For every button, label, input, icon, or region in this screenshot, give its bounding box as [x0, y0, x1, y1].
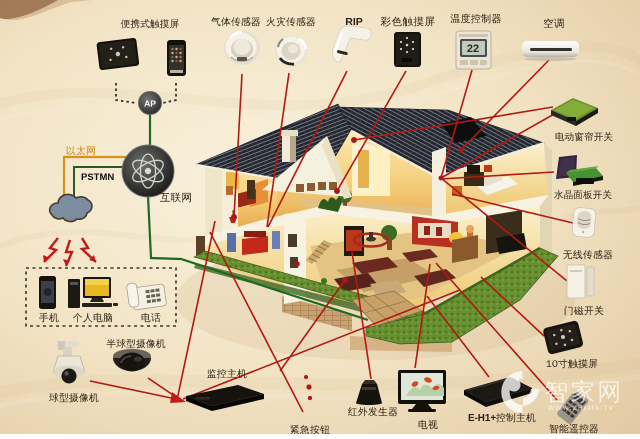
svg-text:E-H1+: E-H1+ — [468, 413, 496, 424]
svg-text:22: 22 — [467, 43, 479, 55]
svg-text:WWW.ZHIJIA.TV: WWW.ZHIJIA.TV — [548, 405, 614, 412]
svg-text:RIP: RIP — [345, 16, 363, 28]
svg-text:PSTMN: PSTMN — [81, 172, 114, 183]
svg-text:AP: AP — [144, 99, 156, 109]
